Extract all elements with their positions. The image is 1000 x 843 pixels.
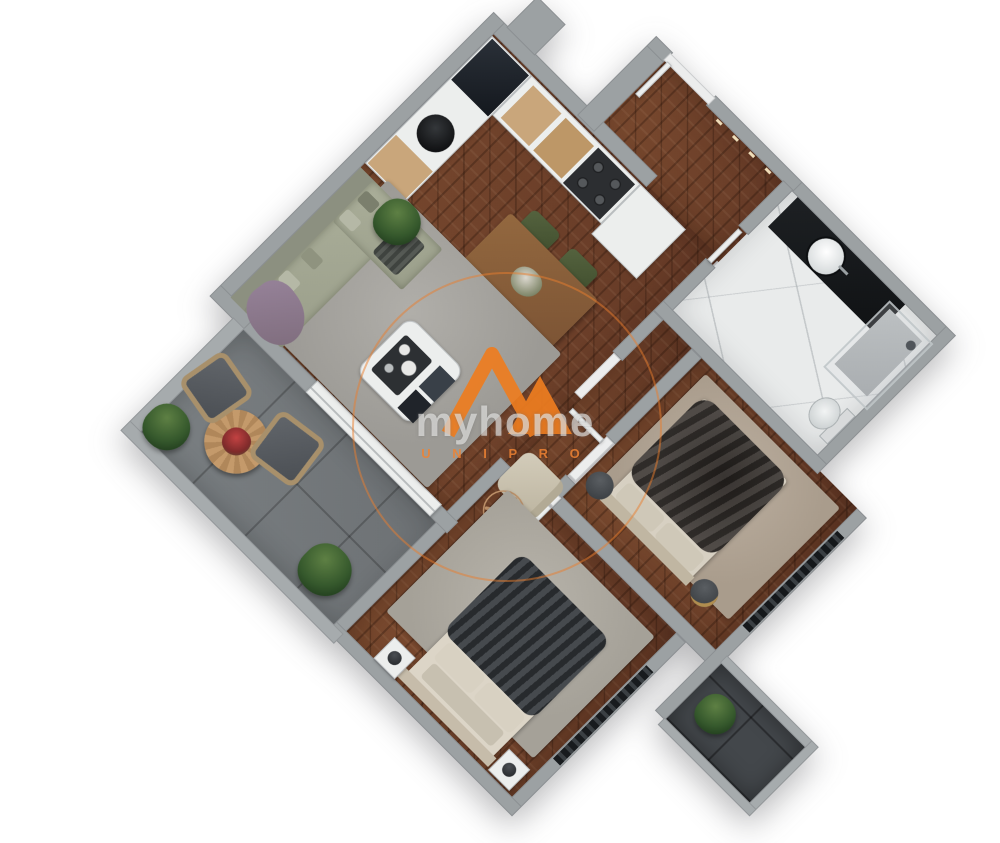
watermark-brand: myhome: [355, 398, 655, 446]
watermark-subtext: U N I P R O: [355, 446, 655, 461]
floor-plan-render: myhome U N I P R O: [0, 0, 1000, 843]
